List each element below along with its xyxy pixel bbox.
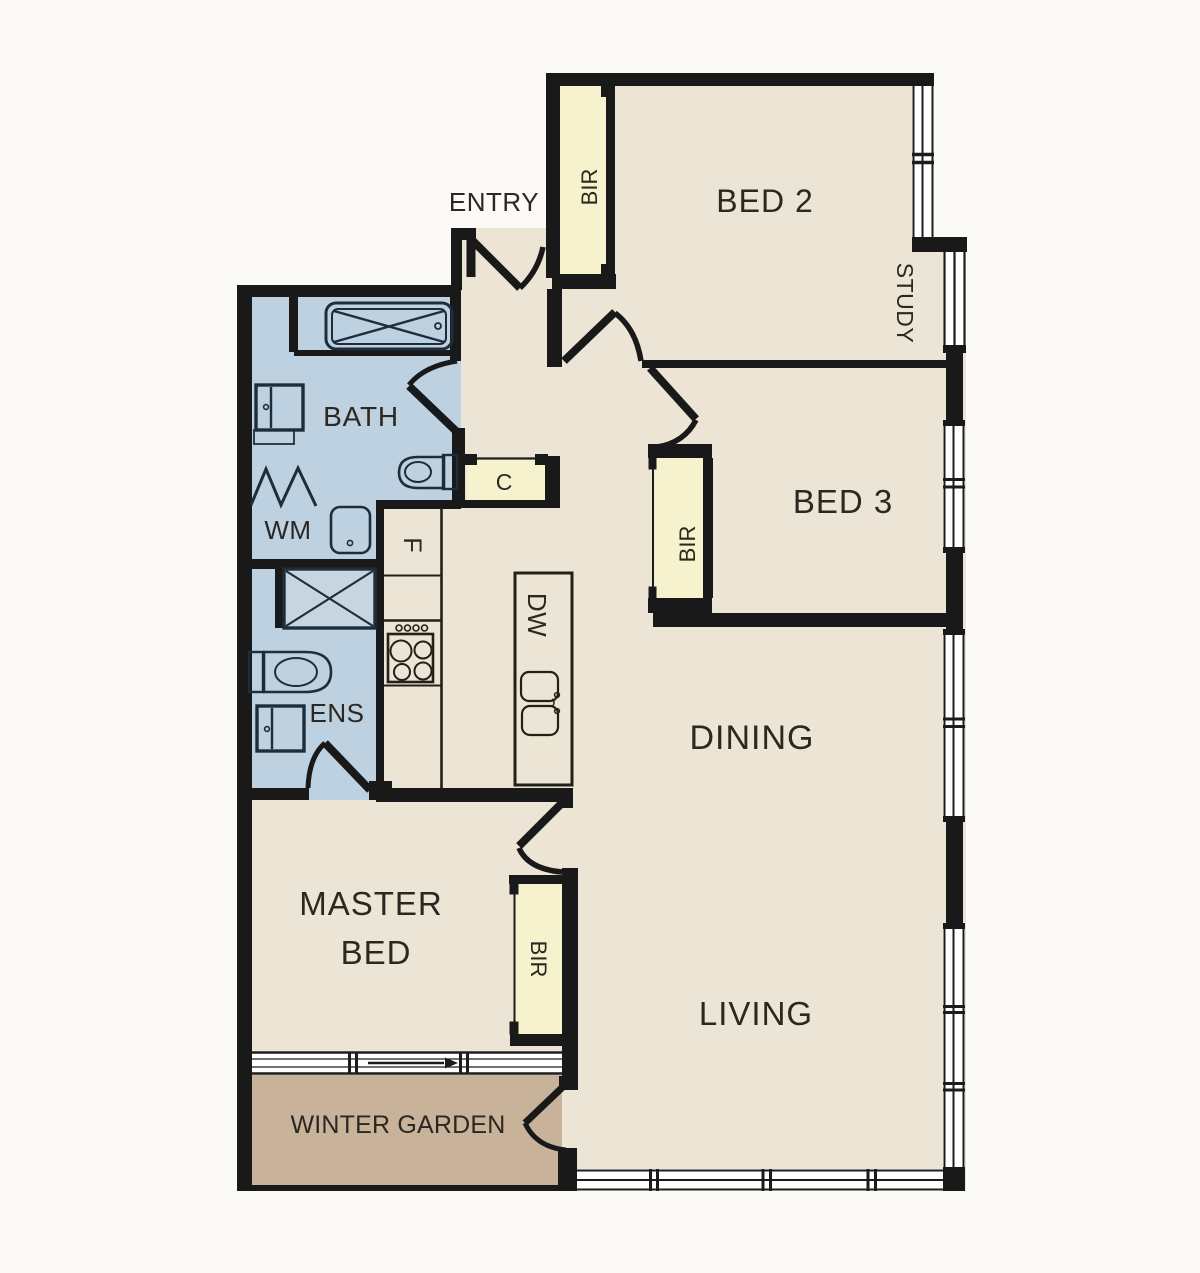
svg-text:BIR: BIR (675, 526, 700, 563)
svg-text:BED: BED (341, 934, 412, 971)
svg-text:BED 2: BED 2 (716, 183, 813, 219)
svg-text:LIVING: LIVING (699, 995, 813, 1032)
svg-text:BIR: BIR (526, 941, 551, 978)
svg-text:ENTRY: ENTRY (449, 187, 539, 217)
svg-text:F: F (398, 537, 426, 552)
svg-text:C: C (496, 469, 513, 495)
svg-text:DINING: DINING (690, 719, 815, 757)
svg-text:MASTER: MASTER (299, 885, 443, 922)
svg-text:BIR: BIR (577, 169, 602, 206)
svg-text:STUDY: STUDY (892, 263, 918, 343)
svg-text:WM: WM (264, 515, 311, 545)
svg-text:DW: DW (522, 593, 552, 637)
svg-text:BED 3: BED 3 (793, 483, 893, 520)
svg-text:ENS: ENS (310, 698, 365, 728)
svg-text:BATH: BATH (323, 401, 399, 432)
svg-text:WINTER GARDEN: WINTER GARDEN (290, 1111, 505, 1139)
